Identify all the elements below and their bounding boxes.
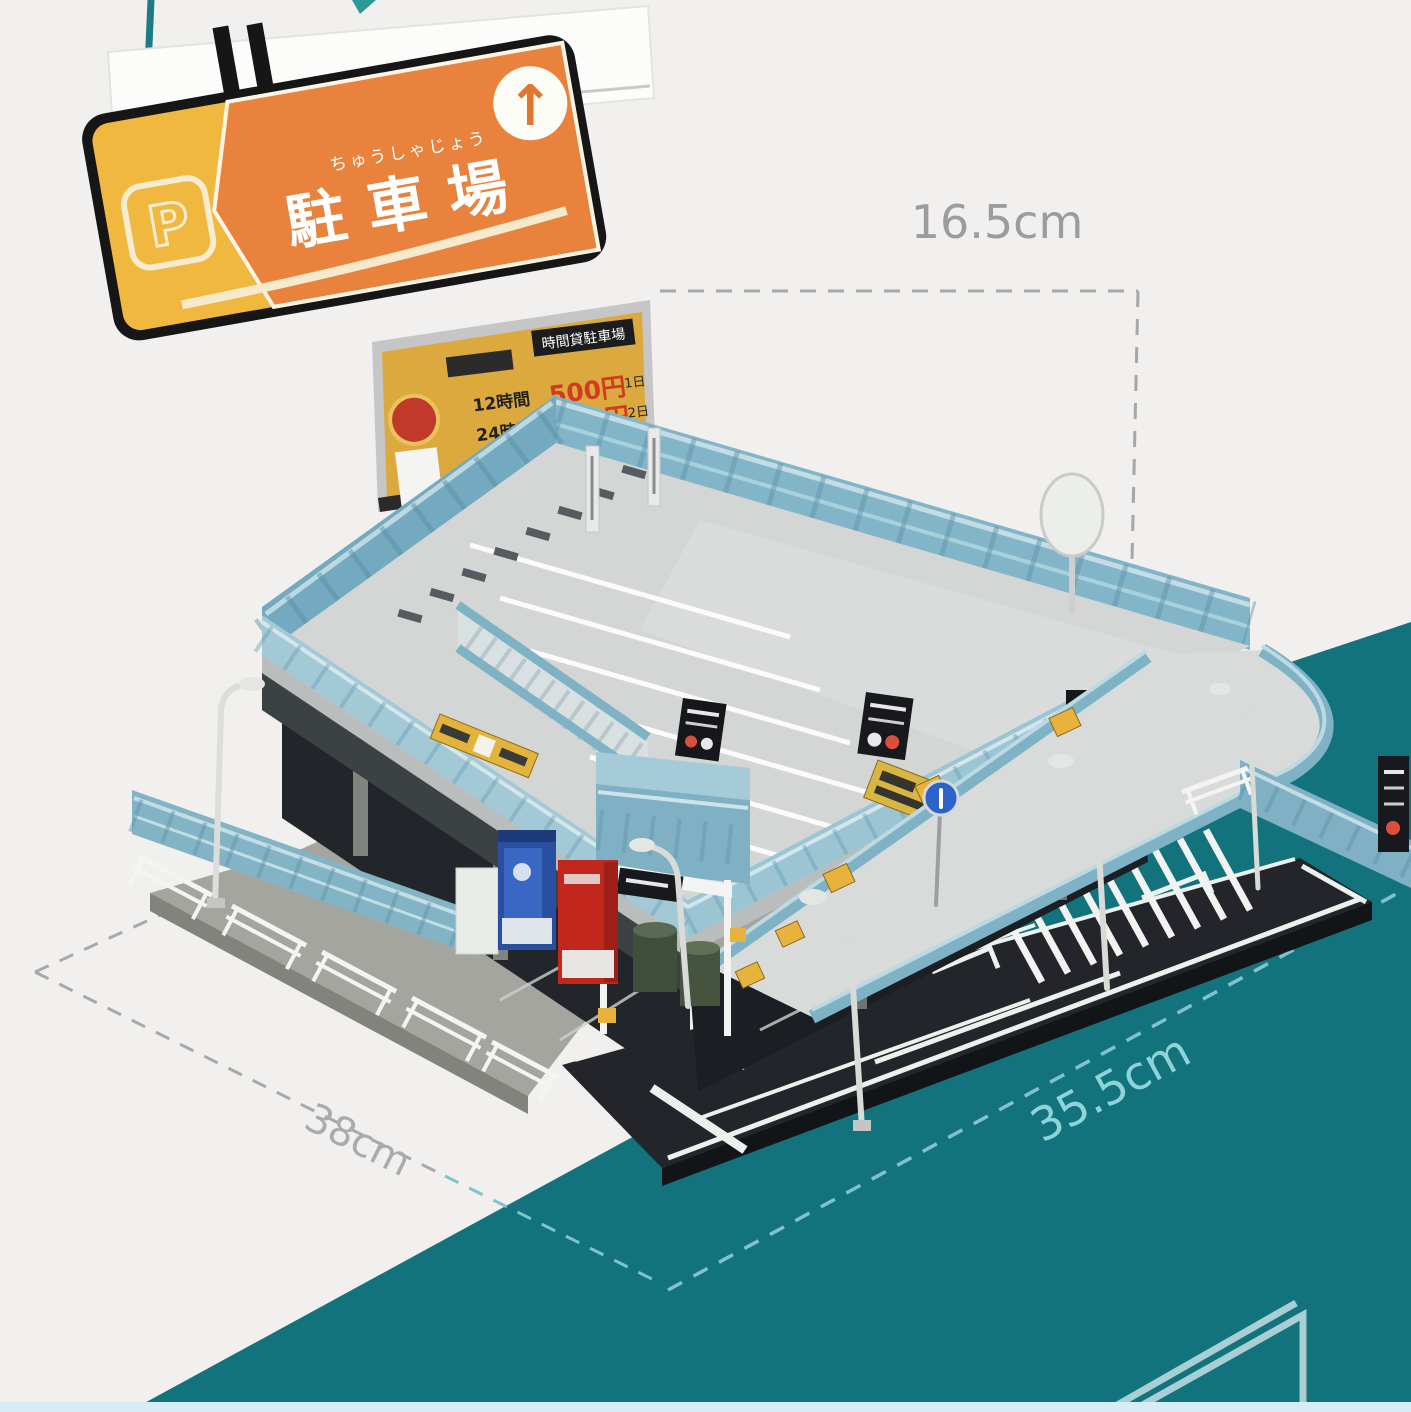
bottom-strip bbox=[0, 1402, 1411, 1412]
tall-black-sign bbox=[1378, 756, 1409, 852]
height-dimension-label: 16.5cm bbox=[911, 195, 1084, 249]
billboard-per-1: 1日 bbox=[623, 374, 646, 391]
product-image: 16.5cm 38cm 35.5cm bbox=[0, 0, 1411, 1412]
gate-plaque bbox=[598, 1008, 616, 1023]
warning-sign bbox=[857, 692, 913, 760]
vending-machine-red bbox=[558, 860, 618, 984]
gate-plaque bbox=[730, 928, 746, 942]
white-cabinet bbox=[456, 868, 498, 954]
vending-machine-blue bbox=[498, 830, 556, 950]
arrow-glyph: ↑ bbox=[507, 74, 554, 139]
warning-sign bbox=[675, 698, 727, 762]
scene: 16.5cm 38cm 35.5cm bbox=[0, 0, 1411, 1412]
